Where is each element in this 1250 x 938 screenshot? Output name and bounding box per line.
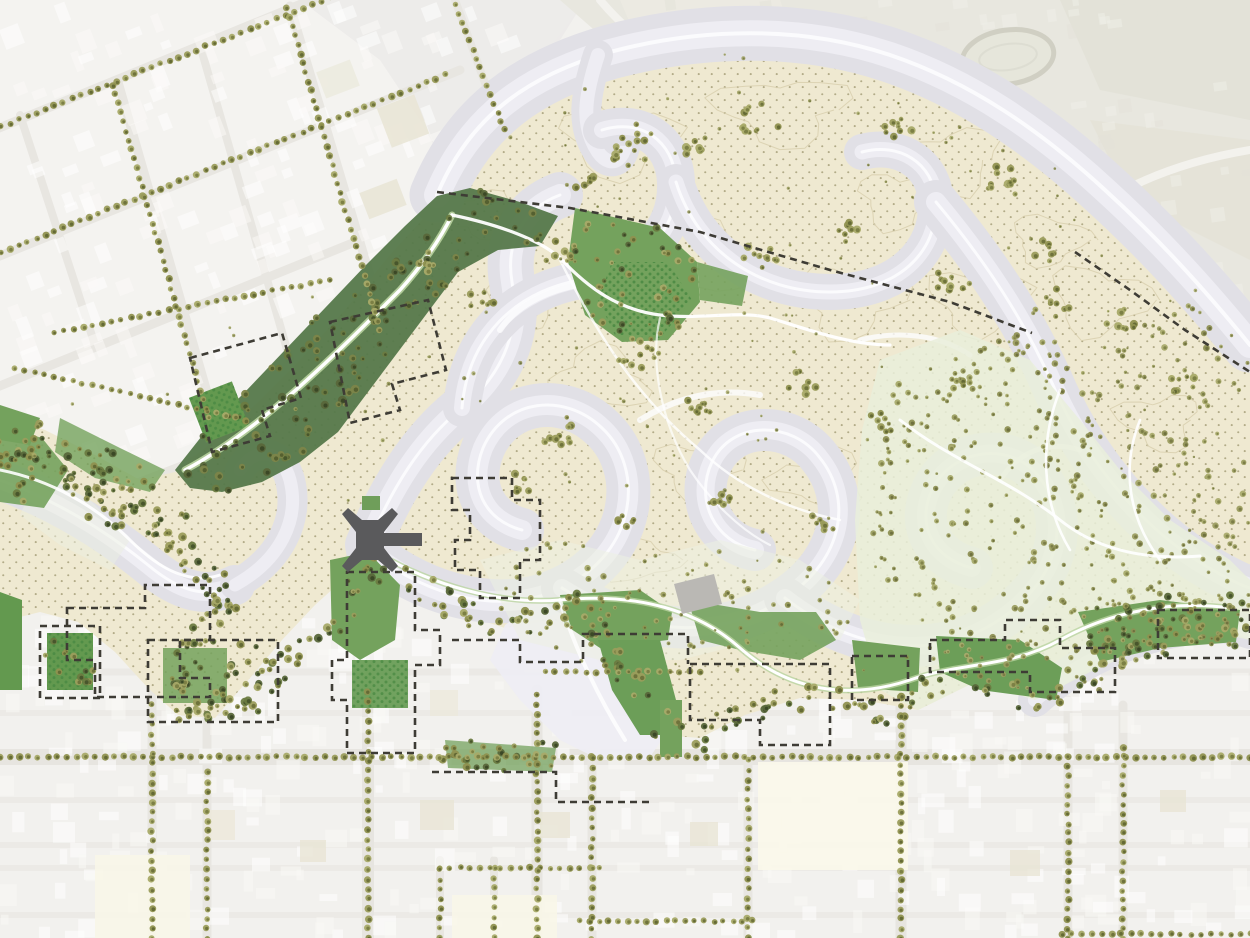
cream-parcel: [758, 762, 908, 870]
beige-building: [420, 800, 454, 830]
beige-building: [540, 812, 570, 838]
orchard-plot-dots: [352, 660, 408, 708]
map-viewport: [0, 0, 1250, 938]
beige-building: [1160, 790, 1186, 812]
beige-building: [690, 822, 718, 846]
beige-building: [300, 840, 326, 862]
road-junction-arm: [380, 533, 422, 546]
cream-parcel: [95, 855, 190, 938]
road-median-green: [362, 496, 380, 510]
beige-building: [205, 810, 235, 840]
beige-building: [430, 690, 458, 716]
beige-building: [1010, 850, 1040, 876]
cream-parcel: [452, 895, 557, 938]
park-green-patch: [0, 592, 22, 690]
masterplan-map: [0, 0, 1250, 938]
